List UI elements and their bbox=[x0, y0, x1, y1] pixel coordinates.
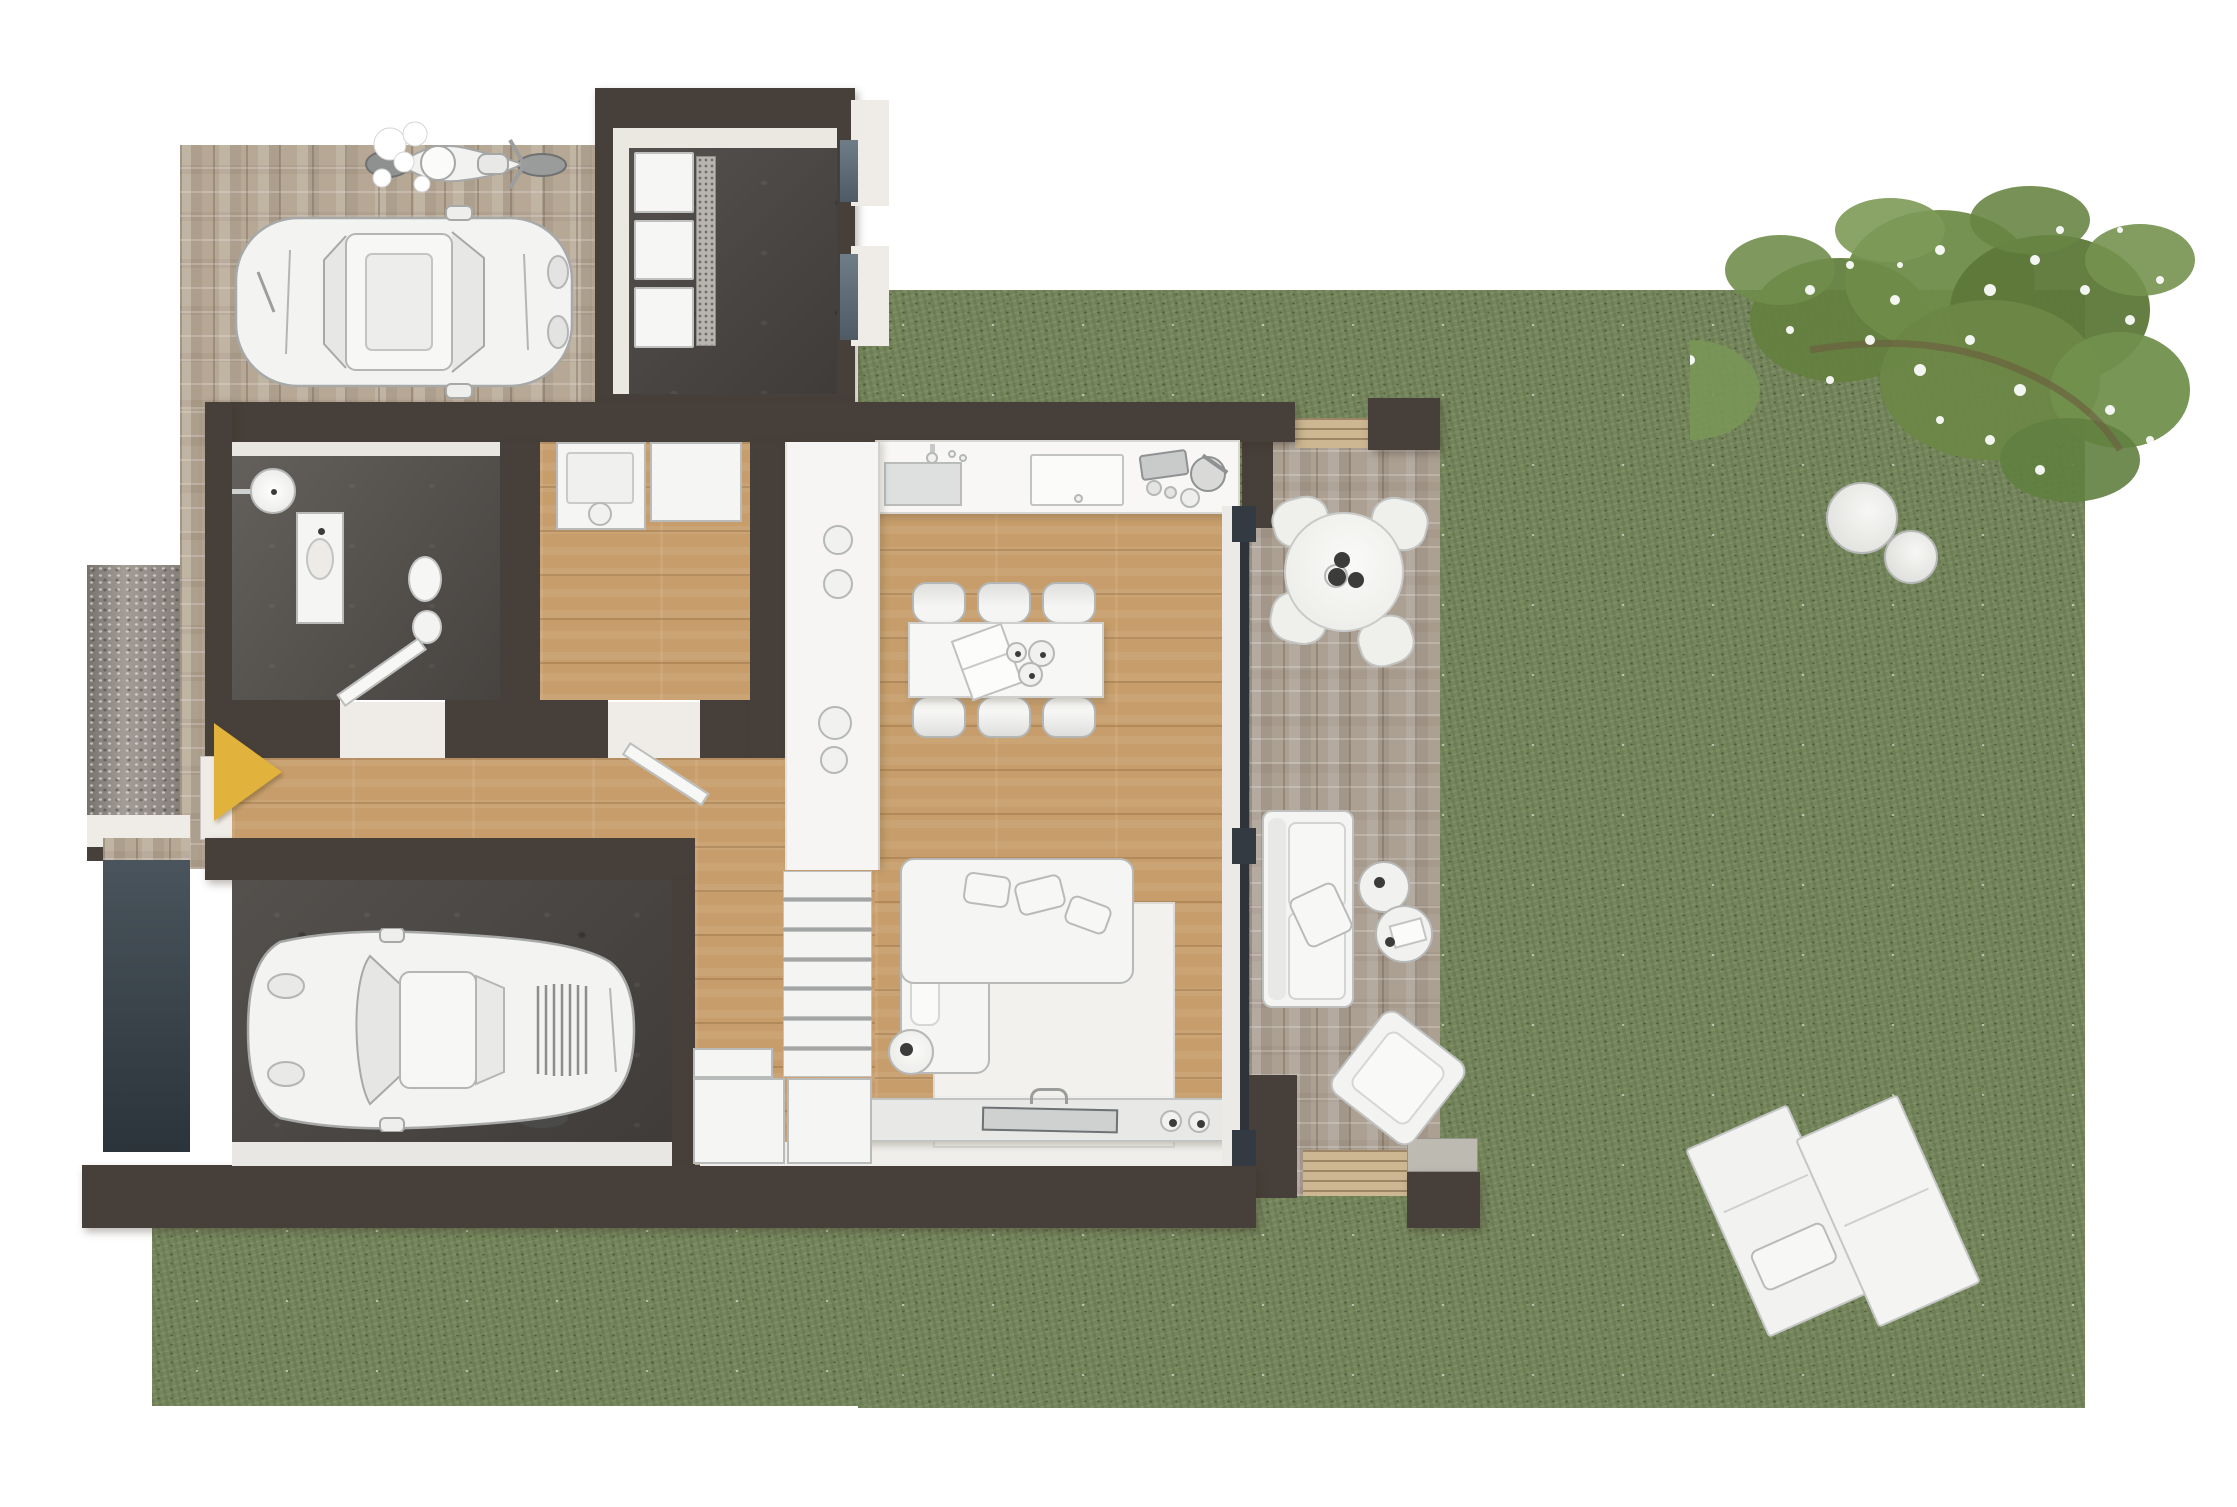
mixer bbox=[1138, 449, 1189, 481]
patio-deck-north bbox=[1295, 418, 1371, 448]
speaker bbox=[1160, 1110, 1182, 1132]
flowering-tree bbox=[1690, 170, 2210, 510]
cooktop bbox=[1030, 454, 1124, 506]
bathroom-door-sill bbox=[340, 702, 445, 758]
glass-wall-mullion bbox=[1232, 828, 1256, 864]
column-circle bbox=[823, 569, 853, 599]
garden-stool-small bbox=[1884, 530, 1938, 584]
utility-wire-baskets bbox=[696, 156, 716, 346]
kitchen-knob bbox=[959, 454, 967, 462]
bowl bbox=[1018, 662, 1043, 687]
book-seam bbox=[963, 652, 1011, 671]
carport-car bbox=[228, 202, 580, 402]
glass-wall-mullion bbox=[1232, 506, 1256, 542]
vanity-tap bbox=[318, 528, 325, 535]
dining-chair bbox=[977, 696, 1031, 738]
kitchen-knob bbox=[948, 450, 956, 458]
stair-tread bbox=[783, 871, 872, 898]
side-table-cup bbox=[900, 1043, 913, 1056]
utility-window-glass bbox=[840, 140, 858, 202]
jar bbox=[1164, 486, 1177, 499]
sofa-back-edge bbox=[1268, 818, 1286, 1000]
lounge-chair-cushion bbox=[1347, 1027, 1448, 1128]
patio-wall-block-se bbox=[1407, 1172, 1480, 1228]
tv-handle bbox=[1030, 1088, 1068, 1104]
dining-table bbox=[908, 622, 1104, 698]
garage-sports-car bbox=[242, 928, 640, 1132]
jar bbox=[1146, 480, 1162, 496]
sofa-main bbox=[900, 858, 1134, 984]
stair-tread bbox=[783, 1050, 872, 1077]
stone-privacy-wall bbox=[87, 565, 180, 817]
patio-wall-block-ne bbox=[1368, 398, 1440, 450]
north-wall bbox=[205, 402, 1295, 442]
shower-nozzle bbox=[271, 489, 277, 495]
stair-tread bbox=[783, 1020, 872, 1047]
column-circle bbox=[823, 525, 853, 555]
laundry-east-wall bbox=[750, 442, 785, 760]
living-side-table bbox=[888, 1029, 934, 1075]
toilet-bowl bbox=[408, 556, 442, 602]
patio-step bbox=[1407, 1138, 1478, 1172]
garage-floor-strip bbox=[232, 1142, 672, 1166]
sofa-pillow bbox=[1062, 893, 1114, 936]
stair-tread bbox=[783, 901, 872, 928]
west-wall bbox=[205, 402, 232, 758]
patio-side-table bbox=[1375, 905, 1433, 963]
dining-chairs-top bbox=[912, 582, 1096, 624]
tv-flat bbox=[982, 1107, 1118, 1134]
vanity-cabinet bbox=[296, 512, 344, 624]
stair-tread bbox=[783, 961, 872, 988]
motorcycle bbox=[360, 118, 570, 210]
garage-north-wall bbox=[205, 838, 700, 880]
bowl bbox=[1180, 488, 1200, 508]
south-wall bbox=[82, 1165, 1256, 1228]
speaker bbox=[1188, 1111, 1210, 1133]
bathroom-south-wall bbox=[445, 700, 500, 760]
dining-chair bbox=[912, 582, 966, 624]
bathroom-east-wall bbox=[500, 442, 540, 760]
laundry-south-wall bbox=[700, 700, 750, 760]
dining-chair bbox=[912, 696, 966, 738]
floor-plan-stage bbox=[0, 0, 2237, 1507]
dining-chair bbox=[977, 582, 1031, 624]
hallway-floor bbox=[232, 758, 695, 838]
laundry-south-wall bbox=[540, 700, 608, 760]
stair-tread bbox=[783, 990, 872, 1017]
table-item bbox=[1334, 552, 1350, 568]
lounger-seam bbox=[1723, 1174, 1808, 1213]
garage-pillar bbox=[103, 838, 190, 860]
utility-window-glass bbox=[840, 254, 858, 340]
tv-sideboard bbox=[862, 1098, 1240, 1142]
sofa-pillow bbox=[962, 871, 1012, 909]
dining-chairs-bottom bbox=[912, 696, 1096, 738]
garage-door-panel bbox=[103, 860, 190, 1152]
kitchen-sink bbox=[884, 462, 962, 506]
patio-round-table bbox=[1284, 512, 1404, 632]
bowl bbox=[1006, 642, 1027, 663]
washing-machine bbox=[556, 442, 646, 530]
side-table-cup bbox=[1374, 877, 1385, 888]
washer-panel bbox=[566, 452, 634, 504]
shower-head bbox=[250, 468, 296, 514]
column-circle bbox=[820, 746, 848, 774]
lounger-seam bbox=[1844, 1188, 1929, 1227]
dining-chair bbox=[1042, 582, 1096, 624]
side-table-cup bbox=[1385, 937, 1395, 947]
storage-box bbox=[634, 287, 694, 348]
storage-box bbox=[634, 152, 694, 213]
kitchen-faucet bbox=[926, 452, 938, 464]
laundry-cabinet bbox=[650, 442, 742, 522]
stair-tread bbox=[783, 931, 872, 958]
glass-wall-mullion bbox=[1232, 1130, 1256, 1166]
stairs-storage-block bbox=[693, 1078, 785, 1164]
laundry-door-sill bbox=[608, 702, 700, 758]
entrance-arrow bbox=[214, 723, 282, 821]
table-item bbox=[1328, 568, 1346, 586]
utility-storage-boxes bbox=[634, 152, 694, 348]
stairs-storage-block bbox=[693, 1048, 773, 1078]
cookware-set bbox=[1138, 444, 1238, 508]
lounger-pillow bbox=[1748, 1220, 1839, 1293]
stairs-storage-block bbox=[787, 1078, 872, 1164]
cooktop-dot bbox=[1074, 494, 1083, 503]
patio-deck-south bbox=[1303, 1150, 1407, 1196]
staircase bbox=[783, 871, 872, 1077]
table-item bbox=[1348, 572, 1364, 588]
column-circle bbox=[818, 706, 852, 740]
vanity-basin bbox=[306, 538, 334, 580]
kitchen-cabinet-column bbox=[785, 442, 880, 870]
washer-door bbox=[588, 502, 612, 526]
patio-sofa bbox=[1262, 810, 1354, 1008]
sofa-pillow bbox=[1013, 873, 1068, 918]
dining-chair bbox=[1042, 696, 1096, 738]
storage-box bbox=[634, 220, 694, 281]
